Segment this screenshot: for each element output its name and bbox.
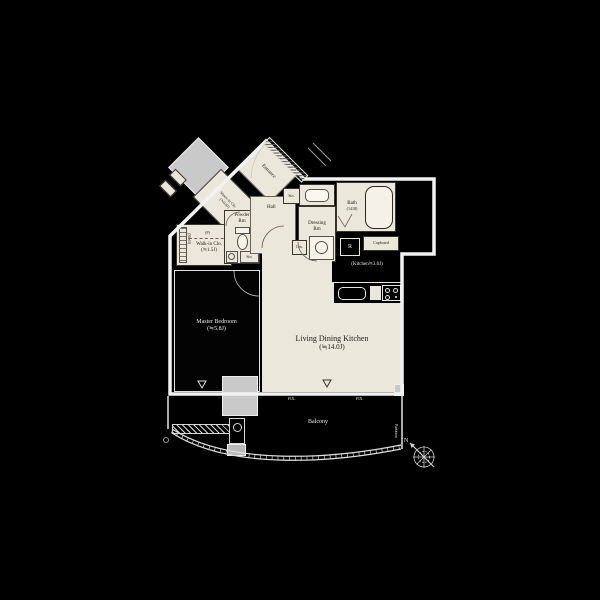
- balcony-partition-label: Partition: [394, 424, 399, 438]
- balcony-rail-ticks: [172, 431, 401, 458]
- burner: [385, 288, 390, 293]
- balcony-label: Balcony: [308, 419, 328, 425]
- living-dining-kitchen: Living Dining Kitchen (≒14.0J): [262, 252, 402, 392]
- cupboard: Cupboard: [363, 236, 399, 251]
- entrance-room: Entrance: [238, 142, 299, 203]
- floor-plan: Entrance Shoes-in Clo. (≒0.8J) (Shelf) (…: [0, 0, 600, 600]
- burner-dot: [395, 296, 397, 298]
- toilet-tank: [235, 227, 250, 234]
- hall-label: Hall: [267, 205, 276, 210]
- entrance-label: Entrance: [260, 164, 277, 181]
- bedroom-size: (≒5.8J): [207, 326, 226, 333]
- kitchen-label: (Kitchen≒3.0J): [332, 262, 402, 268]
- counter-board: [370, 286, 381, 300]
- window-fix-left: FIX.: [288, 396, 295, 401]
- window-fix-right: FIX.: [356, 396, 363, 401]
- entrance-door: [263, 137, 308, 182]
- closet-pole-label: (P): [205, 230, 210, 235]
- burner: [385, 295, 390, 300]
- toilet-bowl: [237, 234, 248, 250]
- stove: [382, 285, 401, 301]
- closet-shelf-band: [179, 227, 187, 263]
- ldk-label: Living Dining Kitchen: [296, 334, 369, 343]
- entrance-step: [308, 143, 331, 166]
- bathtub: [365, 186, 393, 229]
- powder-room-label: Powder: [234, 213, 249, 219]
- dressing-room-label: Dressing: [308, 221, 326, 227]
- kitchen-sink: [338, 287, 366, 300]
- vanity-sink: [305, 189, 329, 202]
- balcony-drain: [164, 438, 169, 443]
- evacuation-hatch: [229, 418, 245, 444]
- closet-pole-line: [189, 238, 229, 239]
- bath-size: (1418): [347, 207, 358, 212]
- compass-north-label: N: [404, 438, 409, 444]
- burner: [393, 288, 398, 293]
- meter-box: [159, 180, 177, 198]
- bath-label: Bath: [347, 201, 356, 207]
- kitchen-counter: [333, 282, 403, 304]
- shoes-closet-label: Shoes-in Clo.: [218, 191, 237, 210]
- washer-drum: [315, 241, 328, 254]
- entrance-door-arc: [251, 143, 266, 179]
- closet-shelf-top-label: (Shelf): [199, 219, 210, 224]
- bedroom-label: Master Bedroom: [196, 319, 237, 326]
- hatch-circle: [233, 423, 242, 432]
- vanity-counter: [299, 184, 335, 206]
- ldk-size: (≒14.0J): [319, 343, 345, 351]
- master-bedroom: Master Bedroom (≒5.8J): [174, 270, 260, 392]
- shaft-block: [168, 137, 229, 198]
- hatch-block: [227, 444, 246, 456]
- compass-icon: [410, 443, 435, 468]
- washer-space: [309, 236, 334, 260]
- hall: Hall: [250, 196, 296, 254]
- bathroom: Bath (1418): [336, 182, 396, 232]
- refrigerator-space: R: [340, 238, 360, 256]
- balcony-rail-inner: [172, 433, 401, 460]
- powder-sink-bowl: [228, 253, 235, 260]
- shoes-closet-size: (≒0.8J): [218, 198, 230, 210]
- pillar: [222, 376, 258, 416]
- pillar: [394, 384, 404, 396]
